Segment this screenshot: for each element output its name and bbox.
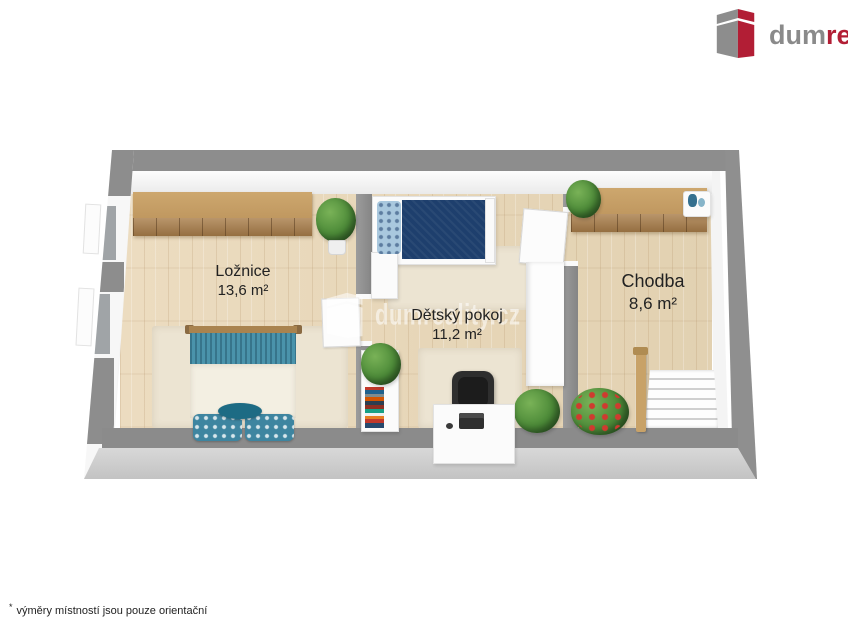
plant-beside-desk: [514, 389, 560, 433]
banister-post: [633, 347, 648, 355]
dumreality-logo: dumreality: [712, 8, 848, 58]
south-wall-face: [84, 448, 756, 479]
window-sill: [83, 204, 102, 255]
door-detsky-chodba: [519, 208, 569, 267]
double-bed-blanket: [190, 333, 296, 364]
potted-plant-loznice: [316, 198, 356, 242]
computer-mouse: [446, 423, 453, 429]
plant-pot: [328, 240, 346, 255]
plant-on-sideboard: [566, 180, 601, 218]
books-colorful: [365, 387, 384, 428]
door-frame: [563, 261, 578, 266]
laptop: [459, 413, 484, 429]
dumreality-cube-icon: [712, 8, 760, 58]
left-wall-segment: [96, 262, 124, 292]
door-loznice: [321, 297, 361, 347]
room-label-chodba: Chodba 8,6 m²: [590, 270, 716, 314]
room-name: Chodba: [590, 270, 716, 293]
bed-pillow-right: [245, 414, 294, 441]
footnote-asterisk: *: [9, 602, 13, 612]
tray-with-vases: [683, 191, 711, 217]
stair-banister: [636, 351, 646, 432]
bed-cushion-round: [218, 403, 262, 419]
wardrobe-top: [133, 192, 312, 218]
window-sill: [75, 288, 94, 347]
nightstand-detsky: [371, 252, 398, 299]
north-wall: [112, 150, 737, 171]
room-area: 11,2 m²: [390, 326, 524, 345]
room-area: 13,6 m²: [180, 282, 306, 301]
plant-on-bookshelf: [361, 343, 401, 385]
single-bed-footboard: [485, 198, 495, 263]
single-bed-pillow: [377, 201, 401, 254]
room-name: Ložnice: [180, 262, 306, 282]
staircase: [645, 370, 718, 428]
blue-vase: [688, 194, 697, 207]
flowering-plant-chodba: [571, 388, 629, 435]
room-label-loznice: Ložnice 13,6 m²: [180, 262, 306, 301]
logo-text-red: reality: [826, 20, 848, 50]
blue-vase-small: [698, 198, 705, 207]
footnote-text: výměry místností jsou pouze orientační: [17, 605, 208, 617]
double-bed-headboard: [189, 326, 297, 333]
room-label-detsky-pokoj: Dětský pokoj 11,2 m²: [390, 306, 524, 345]
wardrobe-loznice: [133, 192, 312, 236]
logo-text-gray: dum: [769, 20, 826, 50]
footnote: *výměry místností jsou pouze orientační: [9, 602, 207, 617]
logo-wordmark: dumreality: [769, 20, 848, 51]
wardrobe-front: [133, 218, 312, 236]
room-area: 8,6 m²: [590, 293, 716, 314]
sideboard-front: [571, 214, 707, 232]
floorplan-render: dumreality.cz Ložnice 13,6 m² Dětský pok…: [0, 0, 848, 636]
tall-wardrobe-white: [526, 262, 564, 386]
room-name: Dětský pokoj: [390, 306, 524, 326]
wall-loznice-detsky-upper: [356, 194, 372, 299]
single-bed-duvet: [402, 200, 486, 259]
